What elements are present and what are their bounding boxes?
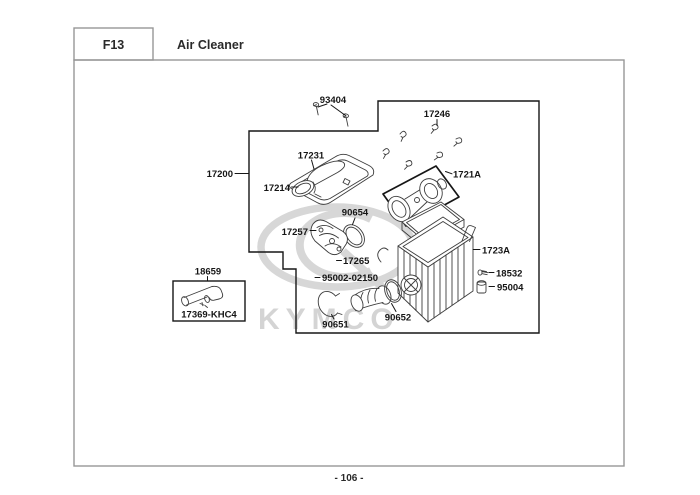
part-label-17214: 17214 bbox=[264, 183, 291, 194]
part-label-17369-KHC4: 17369-KHC4 bbox=[181, 310, 237, 321]
part-label-95004: 95004 bbox=[497, 283, 524, 294]
leader-90654 bbox=[353, 218, 356, 225]
part-label-90654: 90654 bbox=[342, 208, 369, 219]
part-label-17200: 17200 bbox=[207, 169, 233, 180]
part-label-90651: 90651 bbox=[322, 320, 349, 331]
diagram-canvas: KYMCO F13 Air Cleaner - 106 - bbox=[0, 0, 700, 495]
page-title: Air Cleaner bbox=[177, 38, 244, 52]
page-number: - 106 - bbox=[335, 473, 364, 484]
cover-17231-drawing bbox=[289, 154, 373, 204]
mount-95004-drawing bbox=[477, 281, 486, 293]
part-label-17257: 17257 bbox=[282, 227, 308, 238]
part-label-90652: 90652 bbox=[385, 313, 411, 324]
tube-18659-drawing bbox=[180, 286, 222, 307]
section-code: F13 bbox=[103, 38, 125, 52]
part-label-93404: 93404 bbox=[320, 95, 347, 106]
leader-1721A bbox=[446, 172, 453, 174]
case-left-hook bbox=[378, 248, 388, 262]
part-label-18532: 18532 bbox=[496, 269, 522, 280]
part-label-17246: 17246 bbox=[424, 109, 450, 120]
part-label-1723A: 1723A bbox=[482, 246, 510, 257]
part-label-17265: 17265 bbox=[343, 256, 370, 267]
part-label-1721A: 1721A bbox=[453, 170, 481, 181]
part-label-17231: 17231 bbox=[298, 151, 325, 162]
part-label-95002-02150: 95002-02150 bbox=[322, 273, 378, 284]
part-label-18659: 18659 bbox=[195, 267, 221, 278]
parts-catalog-page: KYMCO F13 Air Cleaner - 106 - bbox=[0, 0, 700, 495]
duct-17257-drawing bbox=[311, 220, 348, 255]
clips-17246-drawing bbox=[382, 124, 462, 170]
bolt-18532-drawing bbox=[478, 270, 488, 275]
